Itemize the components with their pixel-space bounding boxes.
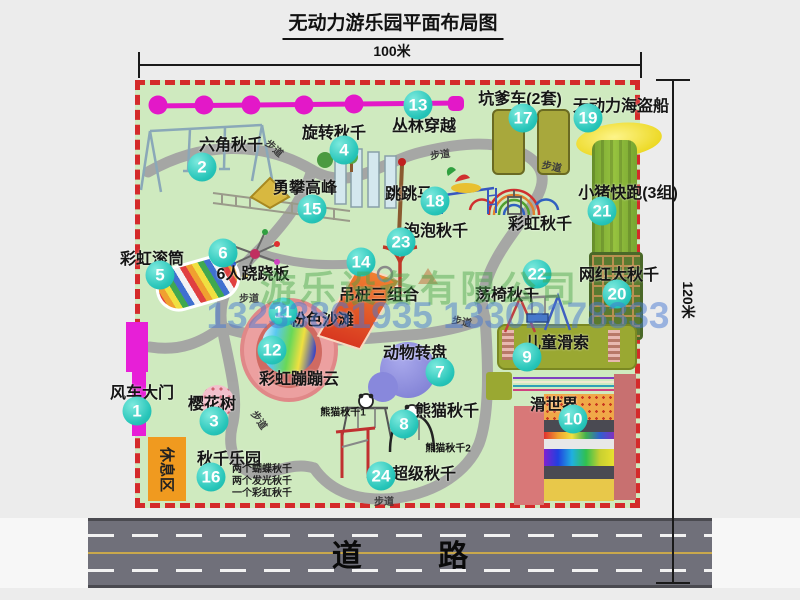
- park-layout-plan: 无动力游乐园平面布局图 100米 120米 休息区: [0, 0, 800, 600]
- swing-park-note-1: 两个蝴蝶秋千: [232, 464, 292, 476]
- badge-24: 24: [367, 462, 396, 491]
- badge-7: 7: [426, 358, 455, 387]
- slide-world-right-wall: [614, 374, 636, 500]
- label-super-swing: 超级秋千: [392, 460, 456, 484]
- badge-18: 18: [421, 187, 450, 216]
- badge-6: 6: [209, 239, 238, 268]
- label-panda-swing: 熊猫秋千: [415, 397, 479, 421]
- label-panda-swing-1: 熊猫秋千1: [320, 404, 366, 419]
- badge-10: 10: [559, 405, 588, 434]
- rest-area-zone: 休息区: [148, 437, 186, 501]
- slide-world-band-rainbow-thin: [544, 432, 614, 439]
- badge-8: 8: [390, 410, 419, 439]
- swing-park-note-2: 两个发光秋千: [232, 476, 292, 488]
- badge-13: 13: [404, 91, 433, 120]
- label-hexagon-swing: 六角秋千: [199, 131, 263, 155]
- right-dimension-line: [672, 80, 674, 584]
- label-rainbow-cloud: 彩虹蹦蹦云: [259, 365, 339, 389]
- badge-5: 5: [146, 261, 175, 290]
- road-label: 道 路: [298, 531, 502, 575]
- slide-world-left-wall: [514, 406, 544, 505]
- label-brave-peak: 勇攀高峰: [273, 174, 337, 198]
- road: 道 路: [88, 518, 712, 588]
- walkway-label: 步道: [374, 493, 394, 508]
- badge-2: 2: [188, 153, 217, 182]
- swing-park-note-3: 一个彩虹秋千: [232, 488, 292, 500]
- badge-3: 3: [200, 407, 229, 436]
- zipline-cable-3: [513, 385, 617, 387]
- badge-12: 12: [258, 336, 287, 365]
- swing-park-notes: 两个蝴蝶秋千 两个发光秋千 一个彩虹秋千: [232, 464, 292, 500]
- badge-4: 4: [330, 136, 359, 165]
- page-title: 无动力游乐园平面布局图: [282, 8, 503, 40]
- label-rainbow-swing: 彩虹秋千: [508, 210, 572, 234]
- badge-21: 21: [588, 197, 617, 226]
- top-dimension-tick-left: [138, 52, 140, 78]
- badge-17: 17: [509, 104, 538, 133]
- badge-19: 19: [574, 104, 603, 133]
- zipline-cable-2: [513, 381, 617, 383]
- badge-9: 9: [513, 343, 542, 372]
- label-panda-swing-2: 熊猫秋千2: [425, 440, 471, 455]
- badge-23: 23: [387, 228, 416, 257]
- height-dimension-label: 120米: [678, 281, 698, 318]
- animal-carousel-small-circle: [368, 372, 398, 402]
- badge-1: 1: [123, 397, 152, 426]
- slide-world-band-dark-2: [544, 466, 614, 479]
- road-margin-right: [712, 518, 800, 588]
- olive-platform-block: [486, 372, 512, 400]
- rest-area-label: 休息区: [157, 446, 178, 491]
- right-dimension-tick-bottom: [656, 582, 690, 584]
- top-dimension-line: [139, 64, 641, 66]
- right-dimension-tick-top: [656, 79, 690, 81]
- walkway-label: 步道: [429, 145, 451, 163]
- badge-15: 15: [298, 195, 327, 224]
- width-dimension-label: 100米: [373, 41, 410, 61]
- road-margin-left: [0, 518, 88, 588]
- watermark-phone: 13233861935 13302178333: [207, 295, 670, 337]
- windmill-gate-shape-top: [126, 322, 148, 372]
- slide-world-band-yellow: [544, 479, 614, 501]
- badge-16: 16: [197, 463, 226, 492]
- slide-world-band-white: [544, 439, 614, 449]
- slide-world-band-rainbow: [544, 449, 614, 466]
- top-dimension-tick-right: [640, 52, 642, 78]
- zipline-cable-1: [513, 377, 617, 379]
